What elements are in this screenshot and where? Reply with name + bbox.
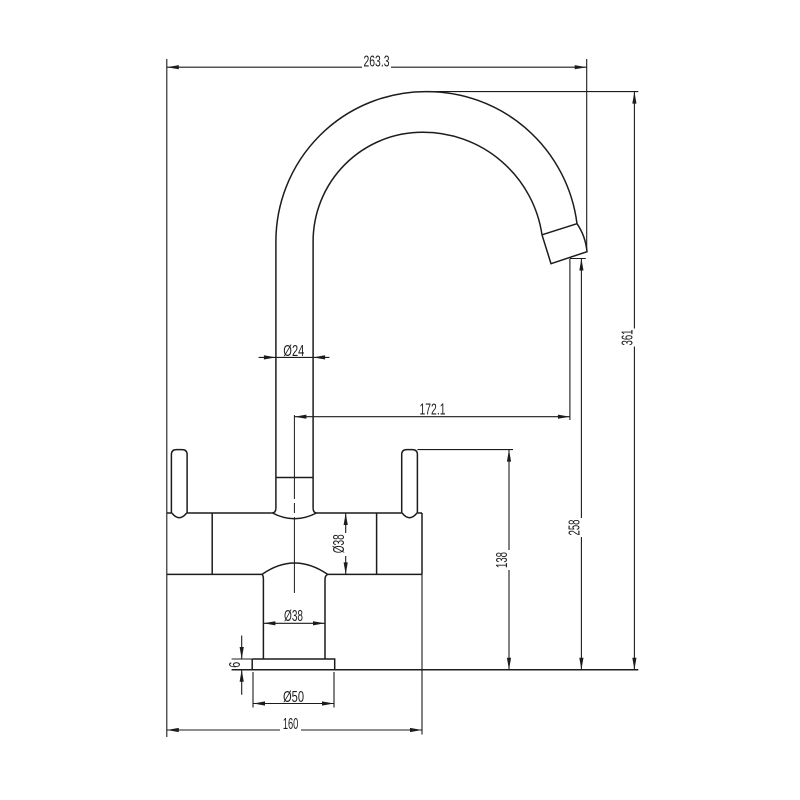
svg-text:Ø38: Ø38	[284, 608, 303, 625]
svg-text:258: 258	[567, 519, 584, 535]
svg-text:160: 160	[283, 716, 299, 733]
svg-text:263.3: 263.3	[364, 54, 390, 71]
svg-text:361: 361	[620, 329, 637, 345]
svg-text:Ø24: Ø24	[283, 343, 304, 360]
svg-text:Ø50: Ø50	[283, 689, 304, 706]
svg-text:172.1: 172.1	[420, 402, 446, 419]
svg-text:Ø38: Ø38	[331, 534, 348, 553]
svg-text:6: 6	[227, 662, 244, 668]
svg-text:138: 138	[494, 552, 511, 568]
